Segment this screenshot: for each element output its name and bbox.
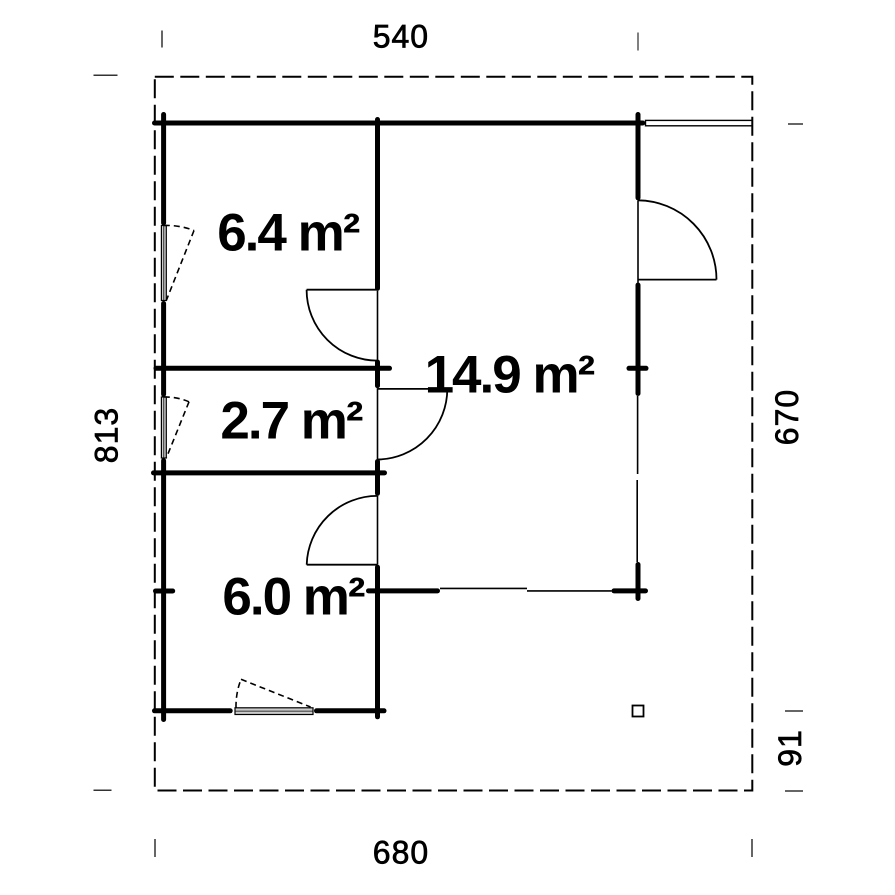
svg-text:6.0 m²: 6.0 m²: [222, 568, 365, 627]
svg-text:2.7 m²: 2.7 m²: [220, 391, 363, 450]
svg-text:540: 540: [373, 19, 429, 55]
svg-text:14.9 m²: 14.9 m²: [425, 346, 595, 405]
svg-text:813: 813: [89, 407, 125, 463]
svg-text:91: 91: [772, 729, 808, 767]
svg-text:6.4 m²: 6.4 m²: [217, 203, 360, 262]
svg-text:670: 670: [769, 389, 805, 445]
svg-text:680: 680: [373, 835, 429, 871]
